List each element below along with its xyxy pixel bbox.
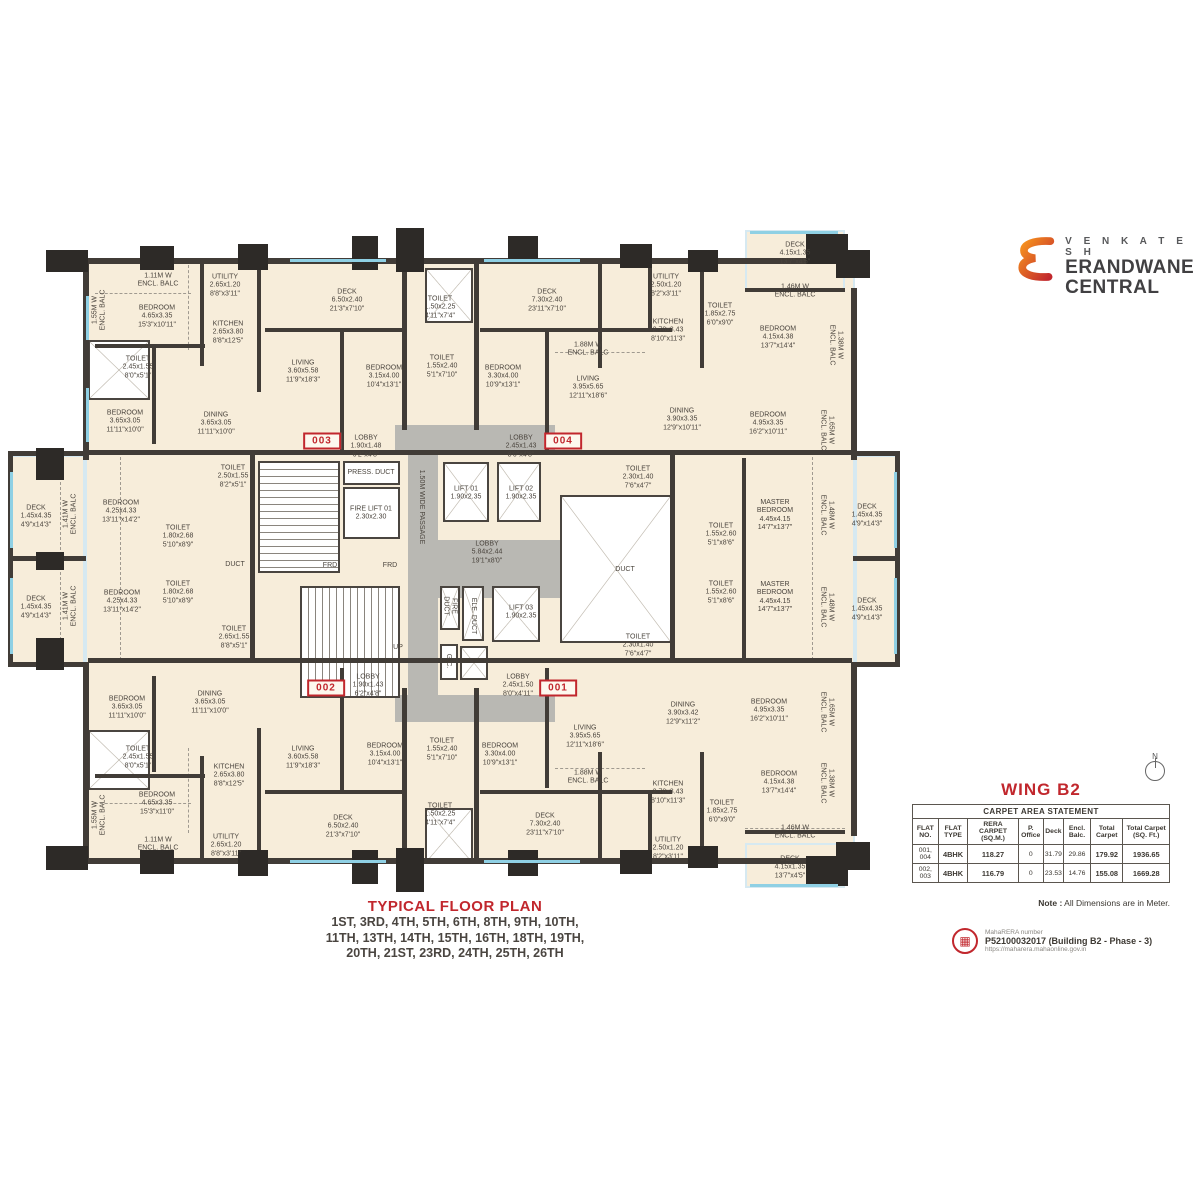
column-block	[688, 846, 718, 868]
wall	[83, 662, 89, 864]
room-label: KITCHEN 2.65x3.80 8'8"x12'5"	[213, 320, 244, 345]
brand-logo: V E N K A T E S H ERANDWANE CENTRAL	[1018, 232, 1200, 298]
wall	[402, 258, 407, 430]
window-strip	[750, 884, 838, 887]
table-header: RERA CARPET (SQ.M.)	[968, 819, 1018, 845]
floors-line-2: 11TH, 13TH, 14TH, 15TH, 16TH, 18TH, 19TH…	[255, 931, 655, 947]
table-cell: 23.53	[1043, 864, 1063, 883]
table-cell: 29.86	[1063, 845, 1090, 864]
room-label: TOILET 1.55x2.40 5'1"x7'10"	[427, 354, 458, 379]
room-label: FIRE LIFT 01 2.30x2.30	[350, 506, 392, 523]
room-label: TOILET 1.55x2.40 5'1"x7'10"	[427, 737, 458, 762]
room-label: DECK 4.15x1.35 13'7"x4'5"	[780, 241, 811, 266]
note-text: All Dimensions are in Meter.	[1062, 898, 1170, 908]
wall	[598, 752, 602, 858]
room-label: 1.46M W ENCL. BALC	[775, 825, 816, 842]
room-label: TOILET 2.30x1.40 7'6"x4'7"	[623, 465, 654, 490]
room-label: LOBBY 1.90x1.43 6'2"x4'8"	[353, 673, 384, 698]
table-header: Total Carpet (SQ. Ft.)	[1123, 819, 1170, 845]
room-label: UTILITY 2.65x1.20 8'8"x3'11"	[211, 833, 242, 858]
window-strip	[894, 578, 897, 654]
table-cell: 116.79	[968, 864, 1018, 883]
table-row: 002, 0034BHK116.79023.5314.76155.081669.…	[913, 864, 1170, 883]
table-cell: 155.08	[1091, 864, 1123, 883]
room-label: LIVING 3.95x5.65 12'11"x18'6"	[569, 375, 607, 400]
room-label: BEDROOM 3.30x4.00 10'9"x13'1"	[482, 742, 518, 767]
room-label: BEDROOM 3.30x4.00 10'9"x13'1"	[485, 364, 521, 389]
room-label: TOILET 2.50x1.55 8'2"x5'1"	[218, 464, 249, 489]
room-label: DECK 1.45x4.35 4'9"x14'3"	[21, 595, 52, 620]
column-block	[36, 448, 64, 480]
unit-number-badge: 003	[303, 433, 341, 450]
north-arrow-icon	[1145, 761, 1165, 781]
wall	[88, 658, 852, 663]
room-label: LOBBY 2.45x1.43 8'0"x4'8"	[506, 434, 537, 459]
staircase-upper	[258, 461, 340, 573]
room-label: KITCHEN 2.65x3.80 8'8"x12'5"	[214, 763, 245, 788]
table-cell: 4BHK	[938, 845, 968, 864]
room-label: BEDROOM 3.65x3.05 11'11"x10'0"	[108, 695, 145, 720]
room-label: BEDROOM 3.15x4.00 10'4"x13'1"	[366, 364, 402, 389]
column-block	[36, 638, 64, 670]
room-label: TOILET 1.85x2.75 6'0"x9'0"	[705, 302, 736, 327]
column-block	[396, 228, 424, 272]
maharera-stamp-icon: ▦	[952, 928, 978, 954]
table-row: 001, 0044BHK118.27031.7929.86179.921936.…	[913, 845, 1170, 864]
room-label: ELE. DUCT	[469, 598, 477, 635]
room-label: BEDROOM 4.65x3.35 15'3"x11'0"	[139, 791, 175, 816]
dimensions-note: Note : All Dimensions are in Meter.	[912, 898, 1170, 908]
room-label: KITCHEN 2.70x3.43 8'10"x11'3"	[651, 318, 685, 343]
balcony-boundary	[188, 265, 189, 350]
table-header: FLAT TYPE	[938, 819, 968, 845]
window-strip	[484, 259, 580, 262]
room-label: LIVING 3.60x5.58 11'9"x18'3"	[286, 359, 320, 384]
brand-name-bot: CENTRAL	[1065, 278, 1200, 298]
wall	[700, 752, 704, 858]
room-label: TOILET 1.80x2.68 5'10"x8'9"	[163, 524, 194, 549]
room-label: DECK 6.50x2.40 21'3"x7'10"	[330, 288, 365, 313]
column-block	[352, 850, 378, 884]
window-strip	[290, 259, 386, 262]
room-label: TOILET 1.55x2.60 5'1"x8'6"	[706, 522, 737, 547]
table-title: CARPET AREA STATEMENT	[913, 805, 1170, 819]
room-label: DECK 7.30x2.40 23'11"x7'10"	[526, 812, 564, 837]
table-cell: 31.79	[1043, 845, 1063, 864]
column-block	[396, 848, 424, 892]
balcony-boundary	[188, 748, 189, 833]
table-cell: 179.92	[1091, 845, 1123, 864]
column-block	[36, 552, 64, 570]
room-label: DINING 3.65x3.05 11'11"x10'0"	[197, 411, 234, 436]
room-label: LIFT 02 1.90x2.35	[506, 486, 537, 503]
wall	[200, 262, 204, 366]
unit-number-badge: 001	[539, 680, 577, 697]
duct-shaft-small	[460, 646, 488, 680]
room-label: BEDROOM 4.95x3.35 16'2"x10'11"	[749, 411, 787, 436]
room-label: DECK 4.15x1.35 13'7"x4'5"	[775, 855, 806, 880]
table-header: Total Carpet	[1091, 819, 1123, 845]
room-label: DECK 7.30x2.40 23'11"x7'10"	[528, 288, 566, 313]
wall	[853, 556, 900, 561]
window-strip	[86, 296, 89, 340]
brand-name-top: V E N K A T E S H	[1065, 236, 1200, 258]
room-label: DECK 1.45x4.35 4'9"x14'3"	[852, 503, 883, 528]
column-block	[688, 250, 718, 272]
balcony-boundary	[95, 293, 191, 294]
room-label: FRD	[323, 562, 337, 570]
window-strip	[10, 578, 13, 654]
room-label: 1.88M W ENCL. BALC	[568, 342, 609, 359]
room-label: UTILITY 2.50x1.20 8'2"x3'11"	[653, 836, 684, 861]
wall	[257, 728, 261, 858]
column-block	[508, 850, 538, 876]
table-cell: 0	[1018, 845, 1043, 864]
room-label: 1.65M W ENCL. BALC	[818, 692, 835, 733]
room-label: LOBBY 2.45x1.50 8'0"x4'11"	[503, 673, 534, 698]
wall	[670, 455, 675, 660]
brand-logo-icon	[1018, 232, 1057, 286]
wall	[474, 258, 479, 430]
title-block: TYPICAL FLOOR PLAN 1ST, 3RD, 4TH, 5TH, 6…	[255, 898, 655, 962]
wall	[851, 288, 857, 460]
room-label: G.C.	[444, 654, 452, 668]
floors-line-1: 1ST, 3RD, 4TH, 5TH, 6TH, 8TH, 9TH, 10TH,	[255, 915, 655, 931]
room-label: TOILET 1.50x2.25 4'11"x7'4"	[425, 802, 456, 827]
table-cell: 14.76	[1063, 864, 1090, 883]
wall	[700, 262, 704, 368]
wall	[851, 662, 857, 836]
rera-block: ▦ MahaRERA number P52100032017 (Building…	[952, 928, 1152, 954]
wall	[742, 458, 746, 658]
wall	[853, 662, 900, 667]
room-label: 1.88M W ENCL. BALC	[568, 770, 609, 787]
table-cell: 001, 004	[913, 845, 939, 864]
table-header: Encl. Balc.	[1063, 819, 1090, 845]
column-block	[620, 850, 652, 874]
column-block	[140, 850, 174, 874]
window-strip	[894, 472, 897, 548]
table-header: Deck	[1043, 819, 1063, 845]
room-label: MASTER BEDROOM 4.45x4.15 14'7"x13'7"	[757, 499, 793, 533]
table-header: P. Office	[1018, 819, 1043, 845]
wall	[402, 688, 407, 860]
room-label: 1.11M W ENCL. BALC	[138, 273, 179, 290]
wall	[95, 344, 205, 348]
room-label: DINING 3.90x3.35 12'9"x10'11"	[663, 407, 701, 432]
room-label: DUCT	[615, 566, 634, 574]
room-label: PRESS. DUCT	[347, 469, 394, 477]
room-label: LOBBY 1.90x1.48 6'2"x4'8"	[351, 434, 382, 459]
column-block	[352, 236, 378, 270]
room-label: TOILET 1.50x2.25 4'11"x7'4"	[425, 295, 456, 320]
room-label: 1.38M W ENCL. BALC	[827, 325, 844, 366]
wall	[265, 328, 405, 332]
wall	[853, 451, 900, 456]
carpet-area-table: CARPET AREA STATEMENTFLAT NO.FLAT TYPERE…	[912, 804, 1170, 883]
room-label: BEDROOM 3.15x4.00 10'4"x13'1"	[367, 742, 403, 767]
room-label: LIFT 01 1.90x2.35	[451, 486, 482, 503]
table-cell: 1669.28	[1123, 864, 1170, 883]
room-label: BEDROOM 4.65x3.35 15'3"x10'11"	[138, 304, 176, 329]
room-label: BEDROOM 4.15x4.38 13'7"x14'4"	[760, 325, 796, 350]
rera-number: P52100032017 (Building B2 - Phase - 3)	[985, 936, 1152, 946]
wall	[88, 450, 852, 455]
unit-number-badge: 004	[544, 433, 582, 450]
table-header: FLAT NO.	[913, 819, 939, 845]
room-label: UTILITY 2.65x1.20 8'8"x3'11"	[210, 273, 241, 298]
wall	[200, 756, 204, 860]
table-cell: 1936.65	[1123, 845, 1170, 864]
room-label: DINING 3.90x3.42 12'9"x11'2"	[666, 701, 700, 726]
room-label: BEDROOM 3.65x3.05 11'11"x10'0"	[106, 409, 143, 434]
rera-url[interactable]: https://maharera.mahaonline.gov.in	[985, 946, 1152, 953]
room-label: LIFT 03 1.90x2.35	[506, 605, 537, 622]
table-cell: 4BHK	[938, 864, 968, 883]
column-block	[140, 246, 174, 270]
room-label: UP	[393, 644, 403, 652]
room-label: TOILET 1.85x2.75 6'0"x9'0"	[707, 799, 738, 824]
room-label: TOILET 2.30x1.40 7'6"x4'7"	[623, 633, 654, 658]
brand-name-mid: ERANDWANE	[1065, 258, 1200, 278]
room-label: UTILITY 2.50x1.20 8'2"x3'11"	[651, 273, 682, 298]
window-strip	[484, 860, 580, 863]
room-label: DUCT	[225, 561, 244, 569]
column-block	[46, 250, 88, 272]
room-label: 1.48M W ENCL. BALC	[818, 587, 835, 628]
column-block	[238, 244, 268, 270]
room-label: TOILET 1.80x2.68 5'10"x8'9"	[163, 580, 194, 605]
wall	[480, 328, 672, 332]
column-block	[806, 856, 848, 886]
balcony-boundary	[812, 457, 813, 660]
room-label: TOILET 2.45x1.55 8'0"x5'1"	[123, 355, 154, 380]
room-label: LOBBY 5.84x2.44 19'1"x8'0"	[472, 540, 503, 565]
room-label: TOILET 1.55x2.60 5'1"x8'6"	[706, 580, 737, 605]
room-label: FIRE DUCT	[441, 596, 458, 615]
wall	[95, 774, 205, 778]
room-label: LIVING 3.60x5.58 11'9"x18'3"	[286, 745, 320, 770]
room-label: MASTER BEDROOM 4.45x4.15 14'7"x13'7"	[757, 581, 793, 615]
north-arrow: N	[1140, 752, 1170, 781]
room-label: TOILET 2.65x1.55 8'8"x5'1"	[219, 625, 250, 650]
room-label: TOILET 2.45x1.55 8'0"x5'1"	[123, 745, 154, 770]
room-label: 1.11M W ENCL. BALC	[138, 837, 179, 854]
floor-plan-canvas: 1.55M W ENCL. BALC1.11M W ENCL. BALCBEDR…	[0, 0, 1200, 1200]
window-strip	[290, 860, 386, 863]
unit-number-badge: 002	[307, 680, 345, 697]
table-cell: 002, 003	[913, 864, 939, 883]
room-label: KITCHEN 2.70x3.43 8'10"x11'3"	[651, 780, 685, 805]
room-label: LIVING 3.95x5.65 12'11"x18'6"	[566, 724, 604, 749]
column-block	[46, 846, 88, 870]
wall	[250, 455, 255, 660]
column-block	[620, 244, 652, 268]
room-label: DINING 3.65x3.05 11'11"x10'0"	[191, 690, 228, 715]
room-label: 1.50M WIDE PASSAGE	[417, 470, 425, 545]
room-label: 1.48M W ENCL. BALC	[818, 495, 835, 536]
room-label: DECK 1.45x4.35 4'9"x14'3"	[21, 504, 52, 529]
room-label: 1.65M W ENCL. BALC	[818, 410, 835, 451]
wing-title: WING B2	[912, 780, 1170, 800]
room-label: BEDROOM 4.25x4.33 13'11"x14'2"	[102, 499, 140, 524]
room-label: BEDROOM 4.15x4.38 13'7"x14'4"	[761, 770, 797, 795]
wall	[474, 688, 479, 860]
room-label: FRD	[383, 562, 397, 570]
column-block	[806, 234, 848, 264]
wall	[265, 790, 405, 794]
room-label: 1.55M W ENCL. BALC	[92, 795, 109, 836]
room-label: 1.41M W ENCL. BALC	[63, 586, 80, 627]
room-label: BEDROOM 4.25x4.33 13'11"x14'2"	[103, 589, 141, 614]
window-strip	[86, 388, 89, 442]
room-label: 1.46M W ENCL. BALC	[775, 284, 816, 301]
note-label: Note :	[1038, 898, 1062, 908]
table-cell: 0	[1018, 864, 1043, 883]
rera-label: MahaRERA number	[985, 929, 1152, 936]
column-block	[238, 850, 268, 876]
floors-line-3: 20TH, 21ST, 23RD, 24TH, 25TH, 26TH	[255, 946, 655, 962]
wall	[480, 790, 672, 794]
room-label: 1.55M W ENCL. BALC	[92, 290, 109, 331]
table-cell: 118.27	[968, 845, 1018, 864]
room-label: 1.41M W ENCL. BALC	[63, 494, 80, 535]
room-label: DECK 1.45x4.35 4'9"x14'3"	[852, 597, 883, 622]
balcony-boundary	[120, 457, 121, 660]
window-strip	[750, 231, 838, 234]
room-label: BEDROOM 4.95x3.35 16'2"x10'11"	[750, 698, 788, 723]
room-label: 1.38M W ENCL. BALC	[818, 763, 835, 804]
room-label: DECK 6.50x2.40 21'3"x7'10"	[326, 814, 361, 839]
plan-title: TYPICAL FLOOR PLAN	[255, 898, 655, 915]
window-strip	[10, 472, 13, 548]
wall	[257, 262, 261, 392]
